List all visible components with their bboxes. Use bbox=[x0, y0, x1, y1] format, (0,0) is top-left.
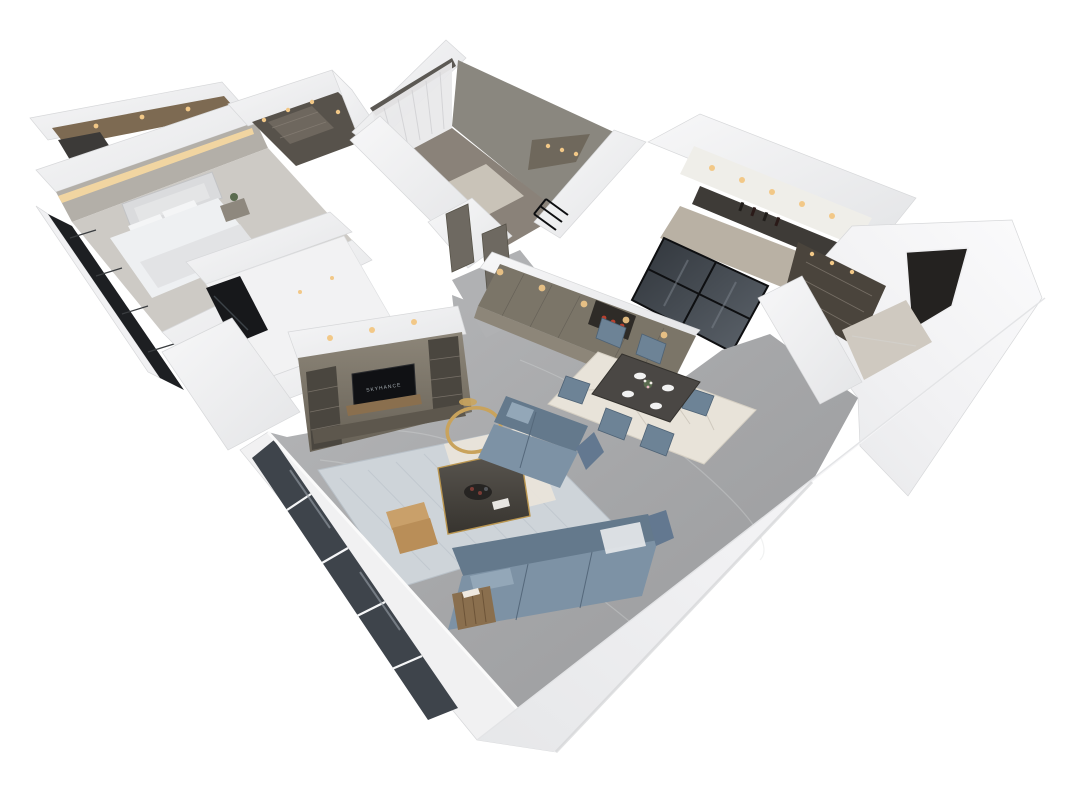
decor-item bbox=[470, 487, 474, 491]
ceiling-spotlight bbox=[497, 269, 504, 276]
ceiling-spotlight bbox=[799, 201, 805, 207]
second-bedroom bbox=[350, 40, 646, 252]
ceiling-spotlight bbox=[623, 317, 630, 324]
ceiling-spotlight bbox=[186, 107, 191, 112]
cabinet-light bbox=[830, 261, 834, 265]
flower-centerpiece bbox=[644, 380, 653, 389]
decor-item bbox=[478, 491, 482, 495]
ceiling-spotlight bbox=[769, 189, 775, 195]
flower bbox=[650, 382, 653, 385]
cabinet-light bbox=[850, 270, 854, 274]
ceiling-spotlight bbox=[286, 108, 290, 112]
wardrobe-light bbox=[546, 144, 550, 148]
dinner-plate bbox=[650, 403, 662, 410]
wardrobe-light bbox=[574, 152, 578, 156]
ceiling-spotlight bbox=[327, 335, 333, 341]
ceiling-spotlight bbox=[369, 327, 375, 333]
cabinet-light bbox=[810, 252, 814, 256]
decor-tray bbox=[464, 484, 492, 500]
decor-item bbox=[484, 487, 488, 491]
ceiling-spotlight bbox=[262, 118, 266, 122]
ceiling-spotlight bbox=[330, 276, 334, 280]
floorplan-svg: SKYHANCE bbox=[0, 0, 1080, 809]
flower bbox=[647, 386, 650, 389]
dinner-plate bbox=[634, 373, 646, 380]
ceiling-spotlight bbox=[829, 213, 835, 219]
ceiling-spotlight bbox=[310, 100, 314, 104]
ceiling-spotlight bbox=[94, 124, 99, 129]
flower bbox=[644, 380, 647, 383]
gold-tray bbox=[459, 398, 477, 406]
dinner-plate bbox=[622, 391, 634, 398]
ceiling-spotlight bbox=[709, 165, 715, 171]
ceiling-spotlight bbox=[336, 110, 340, 114]
ceiling-spotlight bbox=[411, 319, 417, 325]
ceiling-spotlight bbox=[140, 115, 145, 120]
ceiling-spotlight bbox=[581, 301, 588, 308]
plant bbox=[230, 193, 238, 201]
wardrobe-light bbox=[560, 148, 564, 152]
ceiling-spotlight bbox=[739, 177, 745, 183]
dinner-plate bbox=[662, 385, 674, 392]
ceiling-spotlight bbox=[298, 290, 302, 294]
apartment-render: SKYHANCE bbox=[0, 0, 1080, 809]
ceiling-spotlight bbox=[539, 285, 546, 292]
ceiling-spotlight bbox=[661, 332, 668, 339]
